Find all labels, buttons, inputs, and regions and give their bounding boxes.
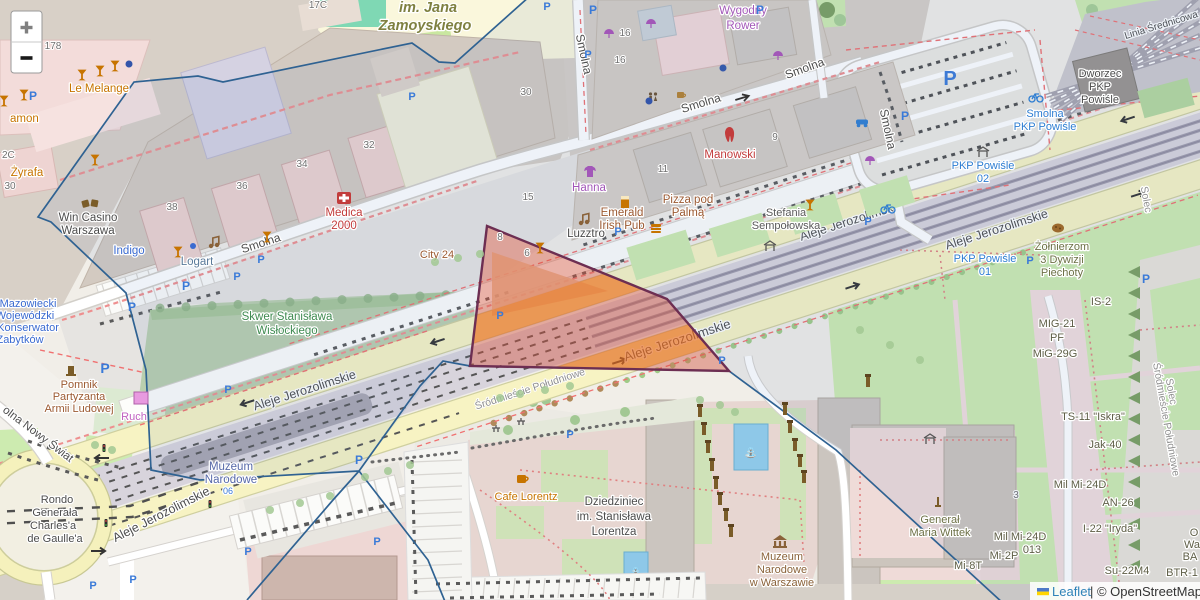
svg-text:Narodowe: Narodowe [757, 564, 807, 576]
svg-text:Smolna: Smolna [1026, 108, 1064, 120]
svg-text:Wojewódzki: Wojewódzki [0, 310, 54, 322]
svg-text:Cafe Lorentz: Cafe Lorentz [495, 491, 558, 503]
svg-text:Maria Wittek: Maria Wittek [909, 527, 971, 539]
svg-text:02: 02 [977, 173, 989, 185]
svg-text:P: P [89, 580, 96, 592]
svg-text:P: P [543, 1, 550, 13]
svg-text:Rower: Rower [726, 20, 759, 32]
svg-text:P: P [901, 109, 909, 123]
svg-text:Partyzanta: Partyzanta [53, 391, 106, 403]
svg-text:MIG-21: MIG-21 [1039, 318, 1076, 330]
svg-text:P: P [233, 271, 240, 283]
svg-text:Irish Pub: Irish Pub [599, 220, 644, 232]
svg-text:Stefania: Stefania [766, 207, 807, 219]
svg-text:P: P [29, 89, 37, 103]
svg-text:P: P [496, 310, 503, 322]
svg-text:Żołnierzom: Żołnierzom [1035, 240, 1089, 253]
svg-text:P: P [1026, 255, 1033, 267]
svg-text:Win Casino: Win Casino [59, 212, 118, 224]
svg-text:Emerald: Emerald [601, 207, 644, 219]
svg-text:P: P [566, 429, 573, 441]
svg-text:P: P [584, 49, 591, 61]
svg-text:Skwer Stanisława: Skwer Stanisława [242, 311, 333, 323]
svg-text:16: 16 [614, 55, 626, 66]
svg-text:Generała: Generała [32, 507, 78, 519]
svg-text:amon: amon [10, 113, 39, 125]
svg-text:Rondo: Rondo [41, 494, 73, 506]
svg-text:O: O [1190, 527, 1199, 539]
svg-text:Zamoyskiego: Zamoyskiego [378, 18, 472, 34]
svg-text:11: 11 [658, 164, 669, 175]
svg-text:6: 6 [524, 248, 530, 259]
svg-text:P: P [129, 574, 136, 586]
svg-text:P: P [182, 279, 190, 293]
svg-text:013: 013 [1023, 544, 1041, 556]
svg-text:P: P [257, 254, 264, 266]
svg-text:Palmą: Palmą [672, 207, 705, 219]
svg-text:TS-11 "Iskra": TS-11 "Iskra" [1061, 411, 1125, 423]
svg-text:PKP Powiśle: PKP Powiśle [952, 160, 1015, 172]
svg-text:P: P [589, 3, 597, 17]
svg-text:im. Jana: im. Jana [399, 0, 457, 16]
svg-text:16: 16 [619, 28, 631, 39]
svg-text:im. Stanisława: im. Stanisława [577, 511, 652, 523]
svg-text:Sempołowska: Sempołowska [752, 220, 821, 232]
svg-text:PKP Powiśle: PKP Powiśle [1014, 121, 1077, 133]
svg-text:Konserwator: Konserwator [0, 322, 59, 334]
svg-text:I-22 "Iryda": I-22 "Iryda" [1083, 523, 1137, 535]
svg-text:178: 178 [45, 41, 62, 52]
svg-text:P: P [408, 91, 415, 103]
svg-text:Generał: Generał [920, 514, 960, 526]
svg-text:P: P [355, 453, 363, 467]
svg-text:38: 38 [166, 202, 178, 213]
svg-text:32: 32 [363, 140, 375, 151]
svg-text:30: 30 [4, 181, 16, 192]
svg-text:P: P [864, 216, 871, 228]
svg-text:P: P [224, 384, 231, 396]
svg-text:P: P [1142, 272, 1150, 286]
svg-text:⛲: ⛲ [745, 446, 757, 459]
svg-text:P: P [718, 355, 725, 367]
svg-text:Ruch: Ruch [121, 411, 147, 423]
svg-text:PF: PF [1050, 332, 1064, 344]
svg-text:8: 8 [497, 232, 503, 243]
svg-text:Hanna: Hanna [572, 182, 606, 194]
svg-text:Indigo: Indigo [113, 245, 144, 257]
svg-text:30: 30 [520, 87, 532, 98]
svg-text:Narodowe: Narodowe [205, 474, 257, 486]
svg-text:Charles'a: Charles'a [30, 520, 77, 532]
svg-text:Pomnik: Pomnik [61, 379, 98, 391]
svg-text:Armii Ludowej: Armii Ludowej [44, 403, 113, 415]
svg-text:Dworzec: Dworzec [1079, 68, 1122, 80]
svg-text:9: 9 [772, 132, 778, 143]
svg-text:06: 06 [223, 486, 233, 496]
svg-text:P: P [128, 300, 136, 314]
svg-text:Medica: Medica [325, 207, 363, 219]
svg-text:Luzztro: Luzztro [567, 228, 605, 240]
svg-text:Warszawa: Warszawa [61, 225, 115, 237]
svg-text:P: P [373, 536, 380, 548]
svg-text:Jak-40: Jak-40 [1088, 439, 1121, 451]
svg-text:34: 34 [296, 159, 308, 170]
svg-text:01: 01 [979, 266, 991, 278]
svg-text:PKP: PKP [1089, 81, 1111, 93]
svg-text:de Gaulle'a: de Gaulle'a [27, 533, 83, 545]
svg-text:Logart: Logart [181, 256, 214, 268]
svg-text:Su-22M4: Su-22M4 [1105, 565, 1150, 577]
svg-text:| © OpenStreetMap: | © OpenStreetMap [1090, 584, 1200, 599]
svg-text:15: 15 [522, 192, 534, 203]
svg-text:3 Dywizji: 3 Dywizji [1040, 254, 1083, 266]
svg-text:P: P [100, 360, 109, 376]
svg-text:Le Melange: Le Melange [69, 83, 129, 95]
svg-text:BTR-1: BTR-1 [1166, 567, 1198, 579]
svg-text:Mil Mi-24D: Mil Mi-24D [994, 531, 1047, 543]
svg-text:2C: 2C [2, 150, 15, 161]
svg-text:BA: BA [1183, 551, 1198, 563]
svg-text:Dziedziniec: Dziedziniec [585, 496, 644, 508]
svg-text:Pizza pod: Pizza pod [663, 194, 714, 206]
svg-text:Leaflet: Leaflet [1052, 584, 1091, 599]
svg-text:17C: 17C [309, 0, 327, 11]
svg-text:Powiśle: Powiśle [1081, 94, 1119, 106]
svg-text:Zabytków: Zabytków [0, 334, 44, 346]
svg-text:Wisłockiego: Wisłockiego [256, 325, 317, 337]
svg-text:Mi-8T: Mi-8T [954, 560, 982, 572]
svg-text:PKP Powiśle: PKP Powiśle [954, 253, 1017, 265]
svg-text:Mil Mi-24D: Mil Mi-24D [1054, 479, 1107, 491]
svg-text:Muzeum: Muzeum [761, 551, 803, 563]
svg-text:Mi-2P: Mi-2P [990, 550, 1019, 562]
svg-text:Mazowiecki: Mazowiecki [0, 298, 56, 310]
svg-text:2000: 2000 [331, 220, 357, 232]
svg-text:w Warszawie: w Warszawie [749, 577, 814, 589]
svg-text:AN-26: AN-26 [1102, 497, 1133, 509]
svg-text:Muzeum: Muzeum [209, 461, 253, 473]
svg-text:P: P [614, 226, 621, 238]
svg-text:MiG-29G: MiG-29G [1033, 348, 1078, 360]
svg-text:P: P [244, 546, 251, 558]
svg-text:Piechoty: Piechoty [1041, 267, 1084, 279]
svg-text:IS-2: IS-2 [1091, 296, 1111, 308]
svg-text:36: 36 [236, 181, 248, 192]
svg-text:Manowski: Manowski [704, 149, 755, 161]
svg-text:Lorentza: Lorentza [592, 526, 637, 538]
svg-text:P: P [756, 3, 764, 17]
svg-text:Żyrafa: Żyrafa [11, 166, 44, 179]
svg-text:Wa: Wa [1184, 539, 1200, 551]
